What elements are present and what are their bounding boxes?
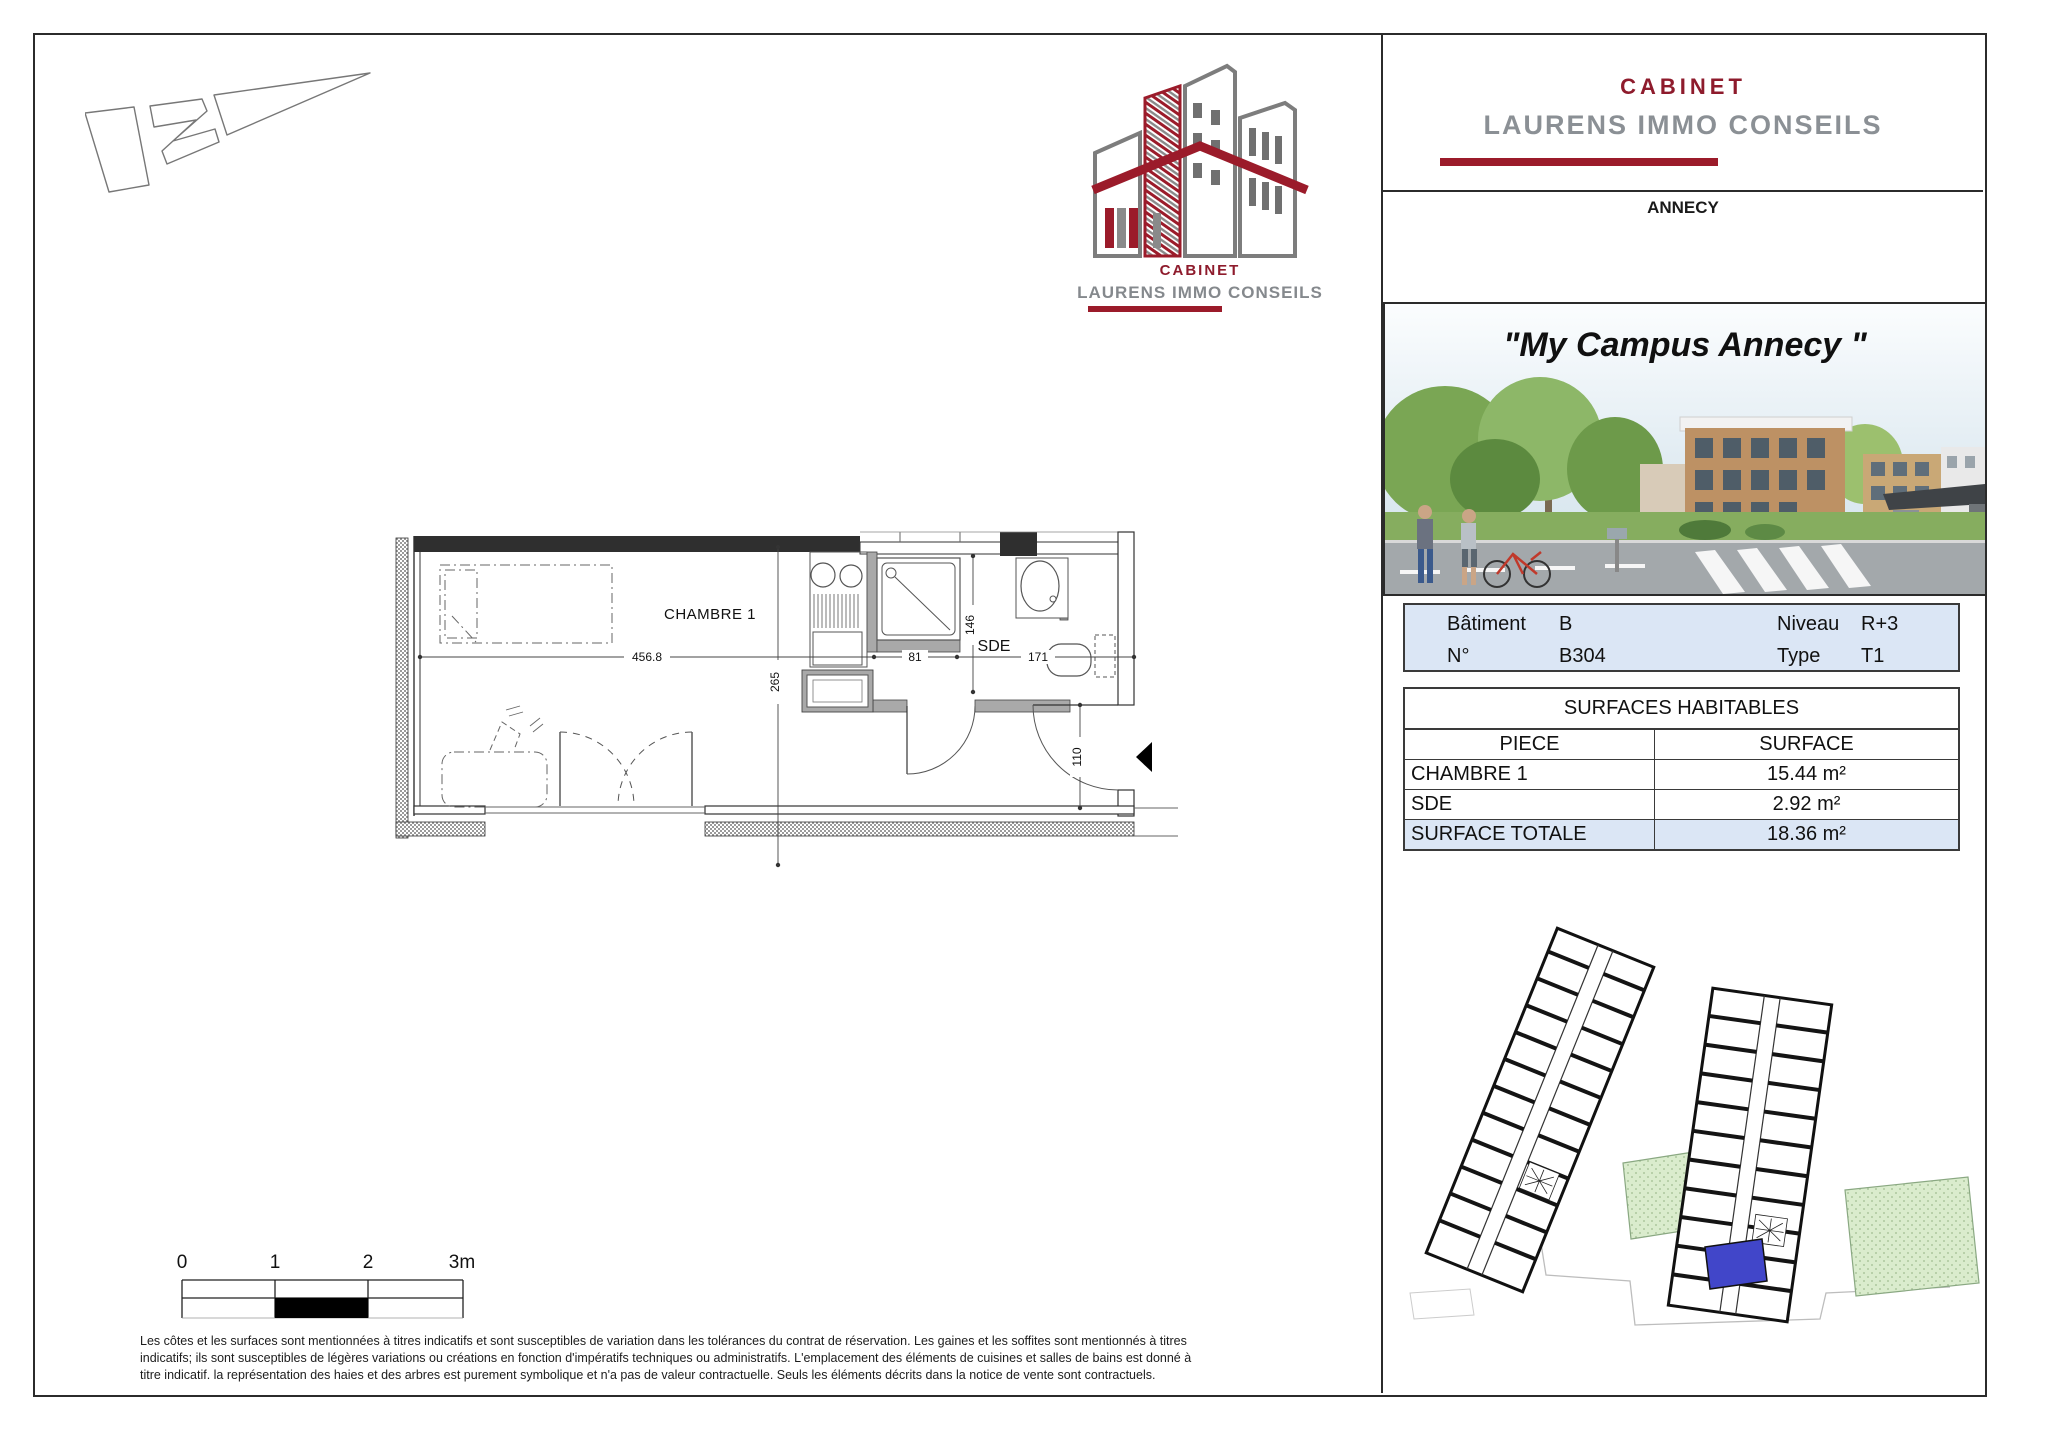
header-rule xyxy=(1383,190,1983,192)
unit-info-table: Bâtiment B Niveau R+3 N° B304 Type T1 xyxy=(1403,603,1960,672)
logo-cabinet-label: CABINET xyxy=(1085,262,1315,279)
bed xyxy=(440,565,612,643)
disclaimer-line: titre indicatif. la représentation des h… xyxy=(140,1367,1290,1384)
sde-door xyxy=(907,706,975,774)
dim-shower-label: 146 xyxy=(963,615,977,635)
col-surface: SURFACE xyxy=(1655,730,1958,759)
panel-divider xyxy=(1381,33,1383,1393)
value-batiment: B xyxy=(1559,613,1777,636)
logo-underline xyxy=(1088,306,1222,312)
header-cabinet-label: CABINET xyxy=(1383,74,1983,100)
surfaces-table: SURFACES HABITABLES PIECE SURFACE CHAMBR… xyxy=(1403,687,1960,851)
table-row: CHAMBRE 1 15.44 m² xyxy=(1405,760,1958,790)
shower xyxy=(877,558,960,640)
scale-bar: 0 1 2 3m xyxy=(150,1250,490,1330)
dim-door-label: 110 xyxy=(1070,747,1084,766)
dim-height-label: 265 xyxy=(768,672,782,692)
dim-sde-label: 171 xyxy=(1028,650,1048,664)
table-row: SDE 2.92 m² xyxy=(1405,790,1958,820)
header-underline xyxy=(1440,158,1718,166)
sofa xyxy=(442,706,547,807)
col-piece: PIECE xyxy=(1405,730,1655,759)
photo-title: "My Campus Annecy " xyxy=(1503,326,1867,364)
dim-kitchen-label: 81 xyxy=(908,650,922,664)
label-batiment: Bâtiment xyxy=(1447,613,1559,636)
kitchenette xyxy=(810,552,867,667)
entry-arrow-icon xyxy=(1136,742,1152,772)
north-arrow-icon xyxy=(85,70,385,205)
disclaimer-line: indicatifs; ils sont susceptibles de lég… xyxy=(140,1350,1290,1367)
value-numero: B304 xyxy=(1559,645,1777,668)
french-door xyxy=(485,732,705,813)
logo-name-label: LAURENS IMMO CONSEILS xyxy=(1060,283,1340,303)
header-city-label: ANNECY xyxy=(1383,198,1983,218)
total-value: 18.36 m² xyxy=(1655,820,1958,849)
appliance-box xyxy=(802,670,873,712)
site-key-plan xyxy=(1390,895,1983,1340)
table-total-row: SURFACE TOTALE 18.36 m² xyxy=(1405,820,1958,849)
building-a xyxy=(1426,928,1654,1291)
total-label: SURFACE TOTALE xyxy=(1405,820,1655,849)
floor-plan: 456.8 81 171 265 146 110 CHAMBRE 1 SDE xyxy=(390,520,1180,880)
label-type: Type xyxy=(1777,645,1861,668)
toilet xyxy=(1047,635,1115,677)
row-piece: SDE xyxy=(1405,790,1655,819)
washbasin xyxy=(1016,558,1068,618)
scale-3m: 3m xyxy=(449,1252,475,1273)
agency-logo-icon xyxy=(1085,58,1315,258)
scale-2: 2 xyxy=(363,1252,374,1273)
value-type: T1 xyxy=(1861,645,1958,668)
header-agency-name: LAURENS IMMO CONSEILS xyxy=(1383,110,1983,141)
green-area xyxy=(1845,1177,1979,1296)
label-niveau: Niveau xyxy=(1777,613,1861,636)
surfaces-title: SURFACES HABITABLES xyxy=(1405,689,1958,730)
row-surface: 15.44 m² xyxy=(1655,760,1958,789)
room-label-sde: SDE xyxy=(978,638,1011,655)
room-label-chambre: CHAMBRE 1 xyxy=(664,606,756,623)
scale-1: 1 xyxy=(270,1252,281,1273)
disclaimer-text: Les côtes et les surfaces sont mentionné… xyxy=(140,1333,1290,1384)
row-surface: 2.92 m² xyxy=(1655,790,1958,819)
scale-0: 0 xyxy=(177,1252,188,1273)
row-piece: CHAMBRE 1 xyxy=(1405,760,1655,789)
dim-width-label: 456.8 xyxy=(632,650,662,664)
label-numero: N° xyxy=(1447,645,1559,668)
project-photo: "My Campus Annecy " xyxy=(1383,302,1987,596)
disclaimer-line: Les côtes et les surfaces sont mentionné… xyxy=(140,1333,1290,1350)
value-niveau: R+3 xyxy=(1861,613,1958,636)
highlighted-unit xyxy=(1705,1239,1767,1289)
